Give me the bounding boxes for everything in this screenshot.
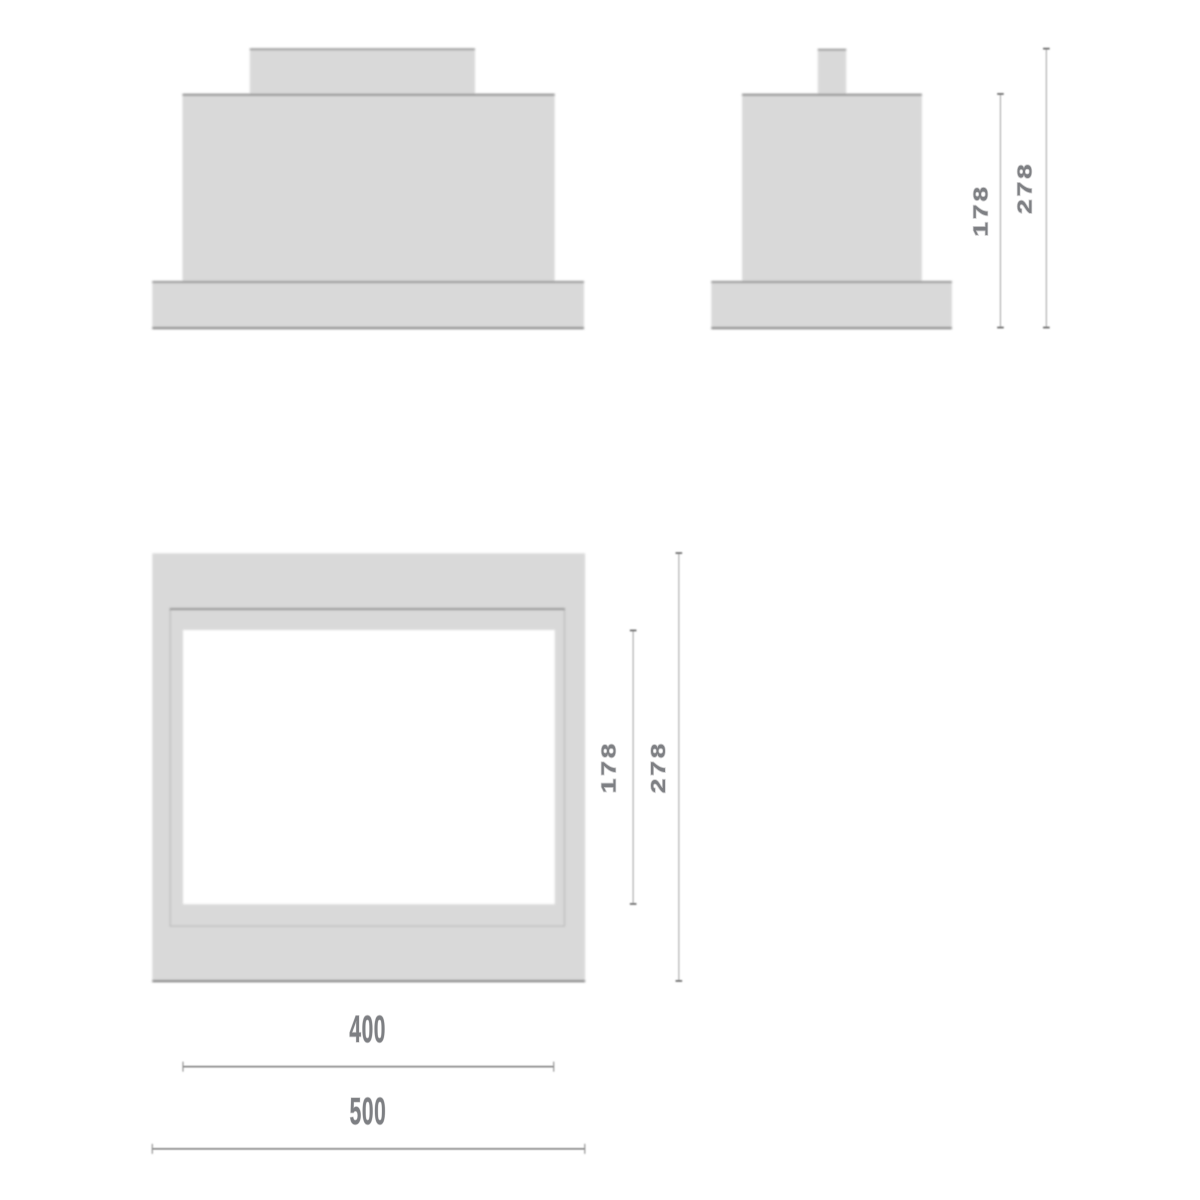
svg-text:278: 278 — [647, 741, 670, 794]
svg-text:500: 500 — [350, 1091, 387, 1133]
svg-text:278: 278 — [1013, 161, 1036, 214]
svg-text:178: 178 — [597, 741, 620, 794]
svg-text:178: 178 — [969, 184, 992, 237]
svg-text:400: 400 — [349, 1008, 386, 1050]
